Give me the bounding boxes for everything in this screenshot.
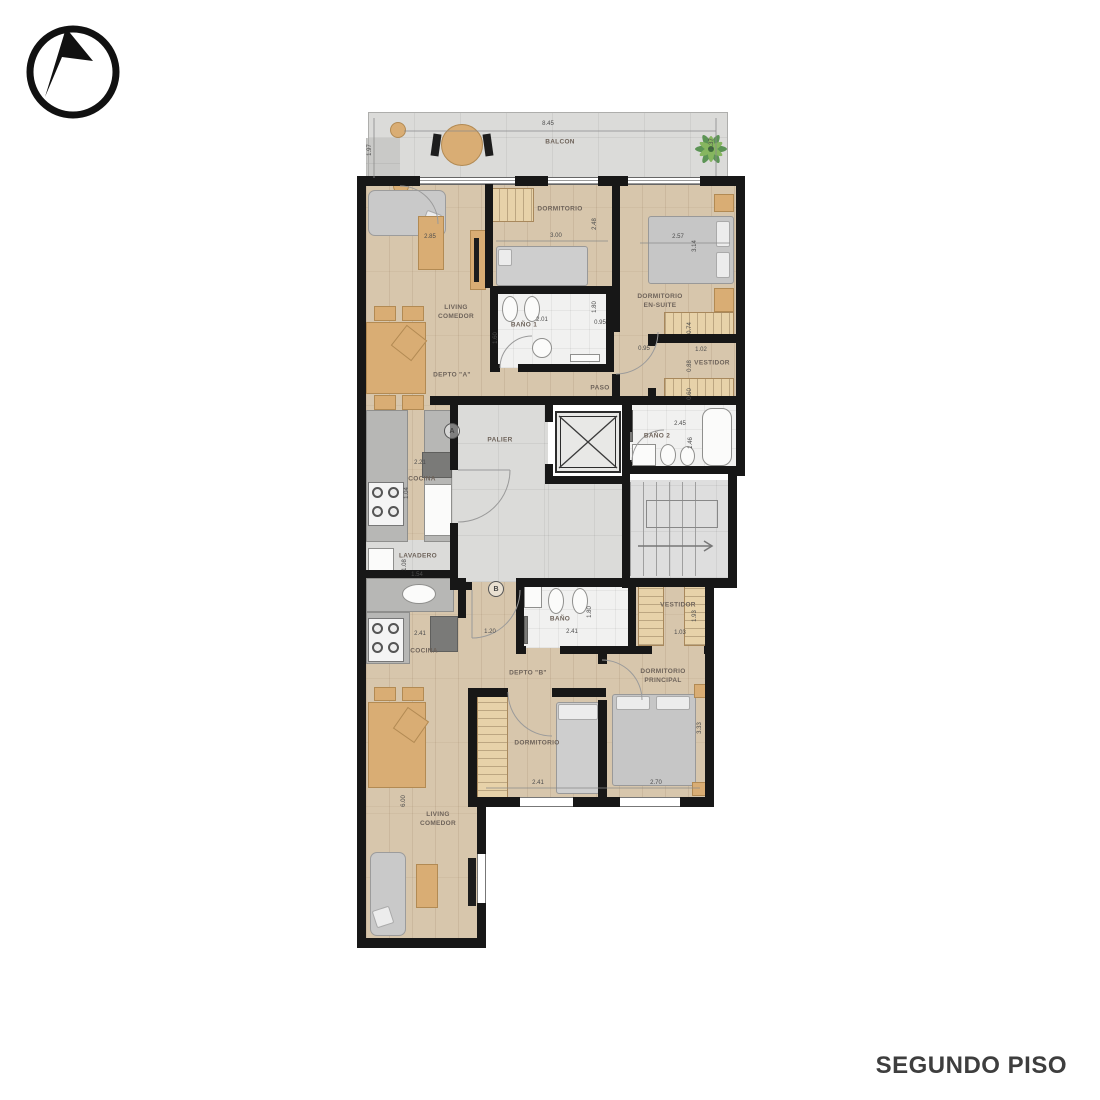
dim-vestidor-b-w: 1.03 [674,630,686,636]
dim-paso-opening2: 0.95 [638,346,650,352]
dimension-lines [374,118,730,788]
north-arrow-icon [30,28,116,115]
room-label-dormitorio-b: DORMITORIO [514,740,559,749]
dim-dorm-a-h: 2.48 [592,218,598,230]
room-label-cocina-b: COCINA [410,648,437,657]
room-label-dormitorio-a: DORMITORIO [537,206,582,215]
dim-bano-b-h: 1.80 [587,606,593,618]
dim-bano2-w: 2.45 [674,421,686,427]
dim-balcony-w: 8.45 [542,121,554,127]
room-label-living-b: LIVING COMEDOR [420,811,456,829]
dim-paso-opening: 0.95 [594,320,606,326]
elevator-x-icon [559,416,617,468]
dim-bano1-h: 1.60 [493,332,499,344]
room-label-vestidor-b: VESTIDOR [660,602,696,611]
room-label-bano1: BAÑO 1 [511,322,537,331]
room-label-vestidor-a: VESTIDOR [694,360,730,369]
dim-ensuite-pass: 1.02 [695,347,707,353]
room-label-palier: PALIER [487,437,512,446]
room-label-cocina-a: COCINA [408,476,435,485]
room-label-dorm-principal: DORMITORIO PRINCIPAL [640,668,685,686]
dim-balcony-right: 1.37 [709,138,715,150]
dim-lavadero-w: 1.54 [411,572,423,578]
room-label-bano-b: BAÑO [550,616,570,625]
dim-bano2-h: 1.46 [688,437,694,449]
dim-dorm-a-w: 3.00 [550,233,562,239]
dim-living-a-w: 2.85 [424,234,436,240]
stairs-arrow-icon [638,541,712,551]
dim-lavadero-h: 1.08 [402,559,408,571]
dim-bano1-w: 2.01 [536,317,548,323]
dim-ensuite-closet: 0.74 [687,322,693,334]
dim-vestidor-a-h1: 0.88 [687,360,693,372]
dim-ensuite-w: 2.57 [672,234,684,240]
room-label-en-suite: DORMITORIO EN-SUITE [637,293,682,311]
dim-balcony-left: 1.97 [367,144,373,156]
dim-cocina-b-w: 2.41 [414,631,426,637]
floor-plan-page: { "footer": { "title": "SEGUNDO PISO" },… [0,0,1100,1100]
dim-hall-b-w: 1.20 [484,629,496,635]
unit-marker-b: B [488,581,504,597]
plan-annotations [0,0,1100,1100]
door-arcs [400,186,664,736]
floor-title: SEGUNDO PISO [876,1052,1067,1080]
dim-living-b-h: 6.00 [401,795,407,807]
dim-vestidor-a-h2: 0.60 [687,388,693,400]
dim-cocina-a-h: 1.04 [404,487,410,499]
dim-principal-w: 2.70 [650,780,662,786]
unit-label-depto-b: DEPTO "B" [509,670,547,679]
unit-marker-a: A [444,423,460,439]
room-label-living-a: LIVING COMEDOR [438,304,474,322]
room-label-balcon: BALCON [545,139,575,148]
room-label-paso: PASO [590,385,609,394]
dim-vestidor-b-h: 1.93 [692,610,698,622]
dim-principal-h: 3.33 [697,722,703,734]
dim-dorm-b-w: 2.41 [532,780,544,786]
dim-bano-b-w: 2.41 [566,629,578,635]
dim-dorm-a-h2: 1.80 [592,301,598,313]
dim-cocina-a-w: 2.21 [414,460,426,466]
dim-ensuite-h: 3.14 [692,240,698,252]
unit-label-depto-a: DEPTO "A" [433,372,471,381]
room-label-bano2: BAÑO 2 [644,433,670,442]
